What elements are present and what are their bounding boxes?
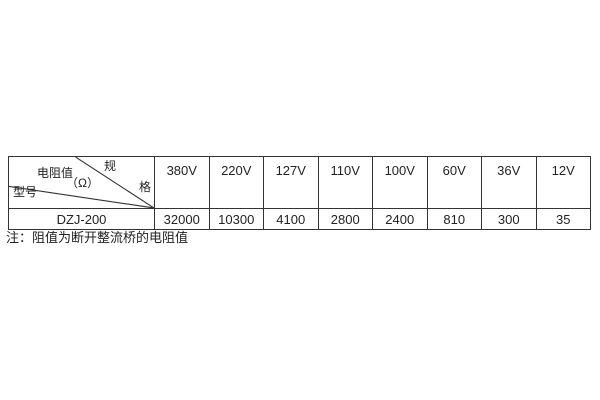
diagonal-header-cell: 规 格 电阻值 （Ω） 型号 [9, 157, 155, 209]
voltage-header-cell: 100V [373, 157, 428, 209]
resistance-value-cell: 300 [482, 209, 537, 230]
voltage-header-cell: 36V [482, 157, 537, 209]
voltage-header-cell: 110V [318, 157, 373, 209]
spec-table: 规 格 电阻值 （Ω） 型号 380V 220V 127V 110V 100V … [8, 156, 591, 230]
resistance-value-cell: 4100 [264, 209, 319, 230]
resistance-value-cell: 35 [536, 209, 591, 230]
spec-label-bottom: 格 [139, 181, 151, 194]
resistance-value-cell: 2400 [373, 209, 428, 230]
voltage-header-cell: 380V [155, 157, 210, 209]
spec-label-top: 规 [104, 160, 116, 173]
note-text: 注：阻值为断开整流桥的电阻值 [6, 227, 188, 246]
voltage-header-cell: 127V [264, 157, 319, 209]
voltage-header-cell: 60V [427, 157, 482, 209]
voltage-header-cell: 12V [536, 157, 591, 209]
table-header-row: 规 格 电阻值 （Ω） 型号 380V 220V 127V 110V 100V … [9, 157, 591, 209]
resistance-value-cell: 2800 [318, 209, 373, 230]
ohm-unit-label: （Ω） [66, 177, 99, 190]
model-label: 型号 [13, 186, 37, 199]
resistance-value-cell: 10300 [209, 209, 264, 230]
voltage-header-cell: 220V [209, 157, 264, 209]
resistance-value-cell: 810 [427, 209, 482, 230]
